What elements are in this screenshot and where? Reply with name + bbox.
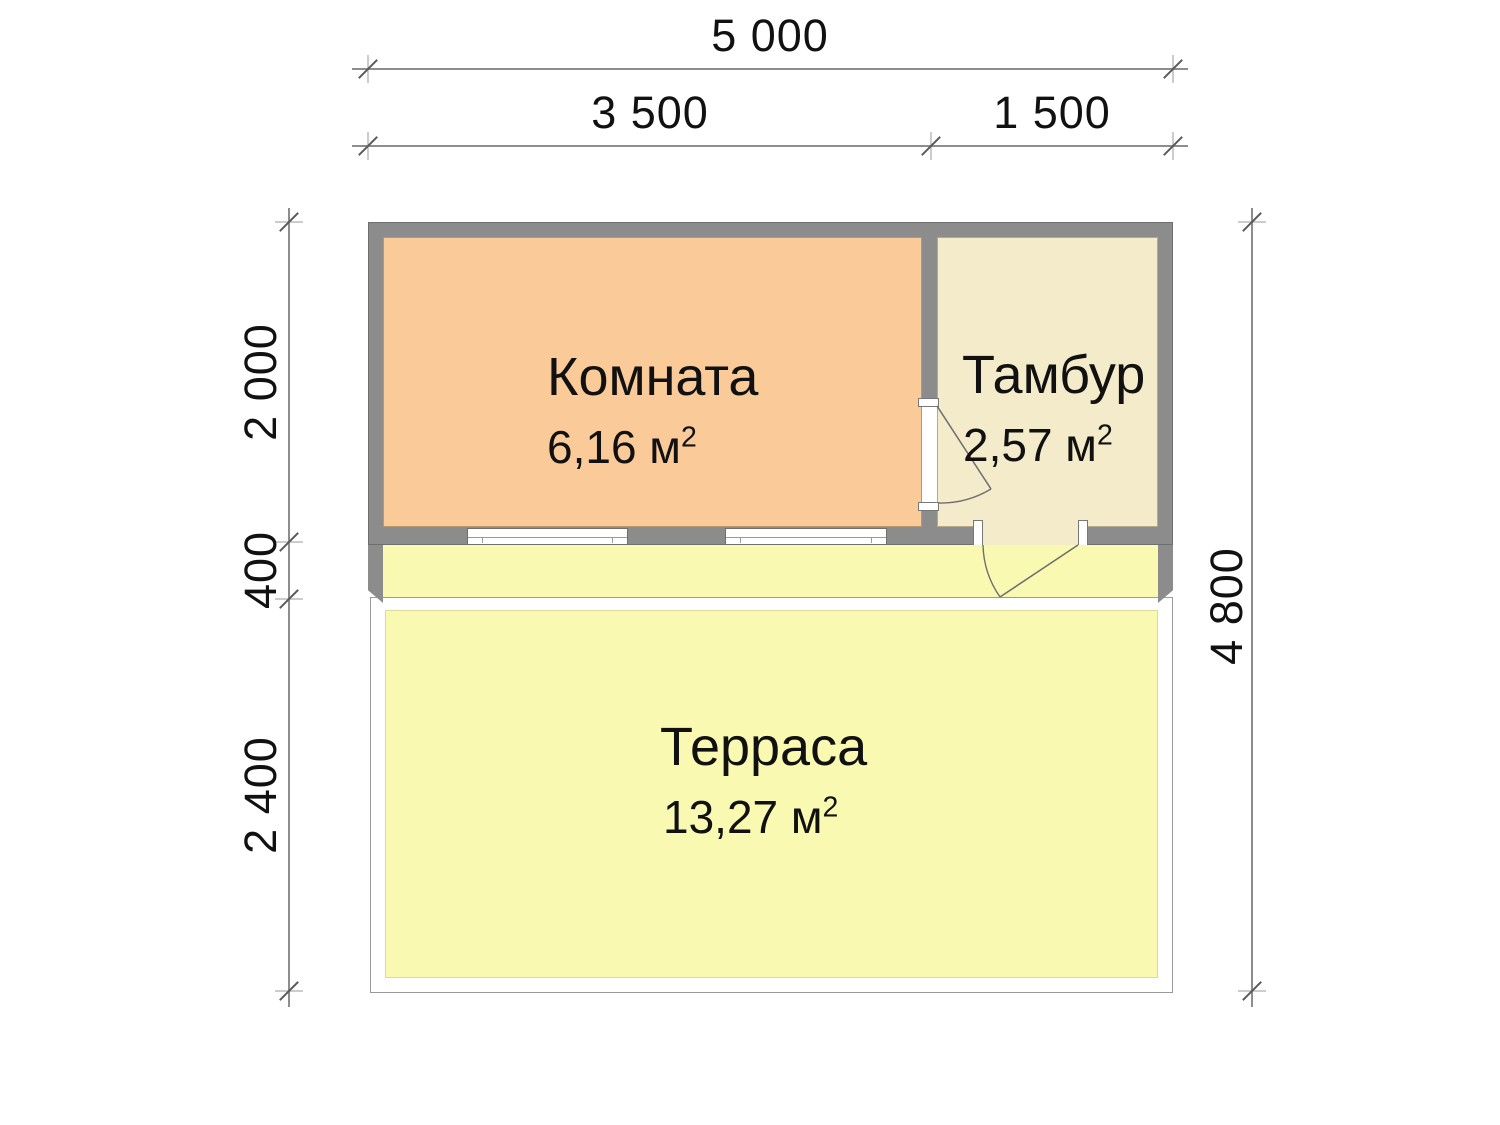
dim-label-left-upper: 2 000 <box>235 323 287 441</box>
dim-label-top-left: 3 500 <box>591 87 709 139</box>
dim-label-right-total: 4 800 <box>1201 547 1253 665</box>
room-name-terrasa: Терраса <box>660 720 867 774</box>
dim-line-top-spans <box>352 145 1188 147</box>
window-1 <box>467 528 628 545</box>
dim-label-left-step: 400 <box>235 531 287 609</box>
window-2 <box>725 528 887 545</box>
dim-line-top-total <box>352 68 1188 70</box>
room-name-komnata: Комната <box>547 350 758 404</box>
interior-door-opening <box>922 406 937 503</box>
room-area-terrasa: 13,27 м2 <box>663 794 838 840</box>
interior-door-jamb-bottom <box>918 502 939 511</box>
room-area-komnata: 6,16 м2 <box>547 424 697 470</box>
interior-door-jamb-top <box>918 398 939 407</box>
dim-label-top-total: 5 000 <box>711 10 829 62</box>
wall-column-left <box>368 545 383 603</box>
room-area-tambur: 2,57 м2 <box>963 422 1113 468</box>
dim-line-left <box>288 208 290 1007</box>
floor-plan-drawing: 5 000 3 500 1 500 2 000 400 2 400 4 800 … <box>0 0 1500 1125</box>
entrance-door-jamb-right <box>1078 520 1088 547</box>
dim-label-left-lower: 2 400 <box>235 736 287 854</box>
entrance-door-opening <box>983 526 1078 545</box>
dim-label-top-right: 1 500 <box>993 87 1111 139</box>
room-name-tambur: Тамбур <box>962 348 1145 402</box>
entrance-door-jamb-left <box>973 520 983 547</box>
porch-strip <box>383 545 1158 597</box>
wall-column-right <box>1158 545 1173 603</box>
